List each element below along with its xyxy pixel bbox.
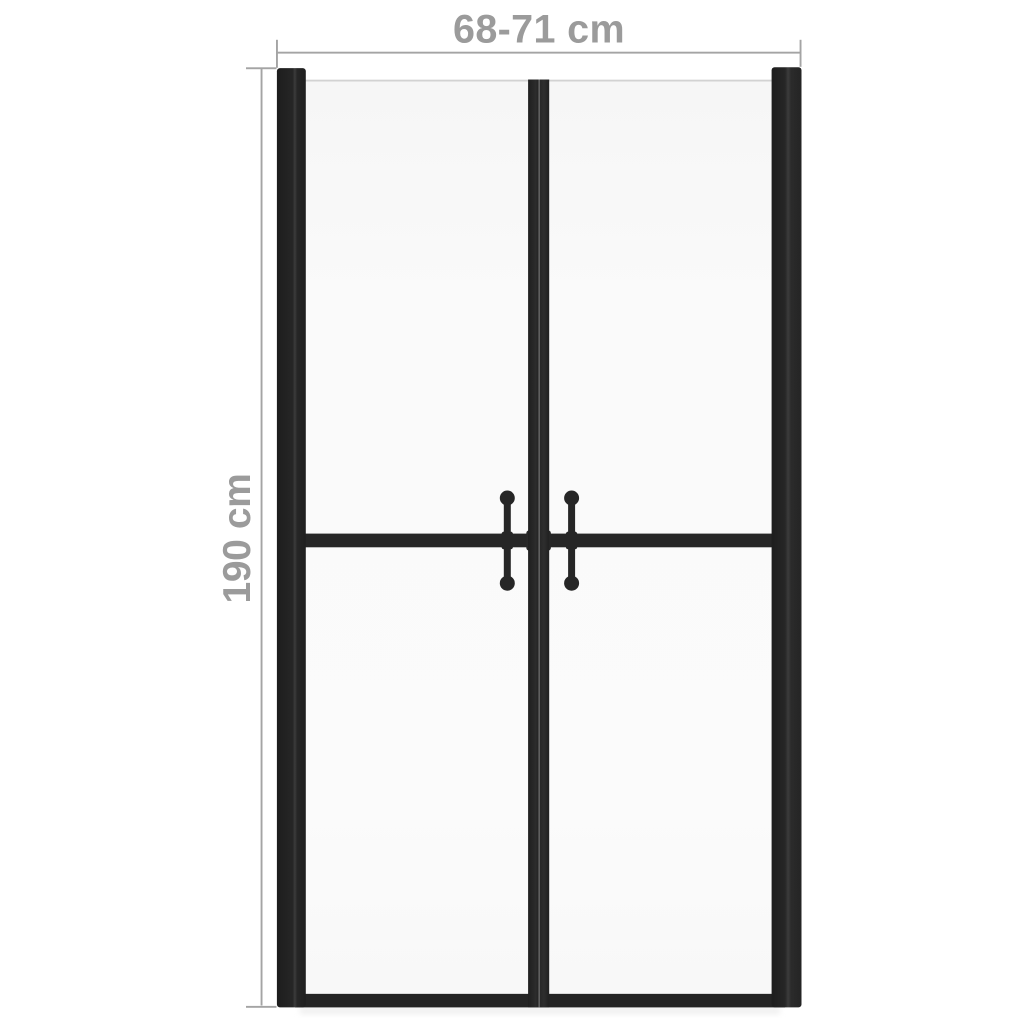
svg-text:190 cm: 190 cm bbox=[216, 474, 259, 604]
svg-text:68-71 cm: 68-71 cm bbox=[453, 8, 625, 52]
